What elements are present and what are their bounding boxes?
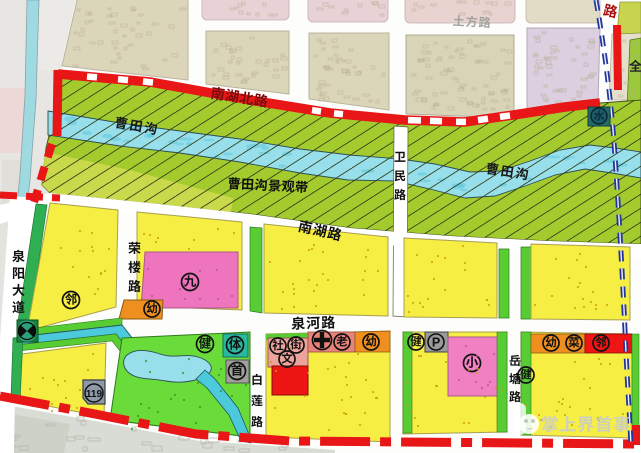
svg-text:119: 119 (86, 389, 103, 400)
svg-text:P: P (432, 336, 440, 350)
